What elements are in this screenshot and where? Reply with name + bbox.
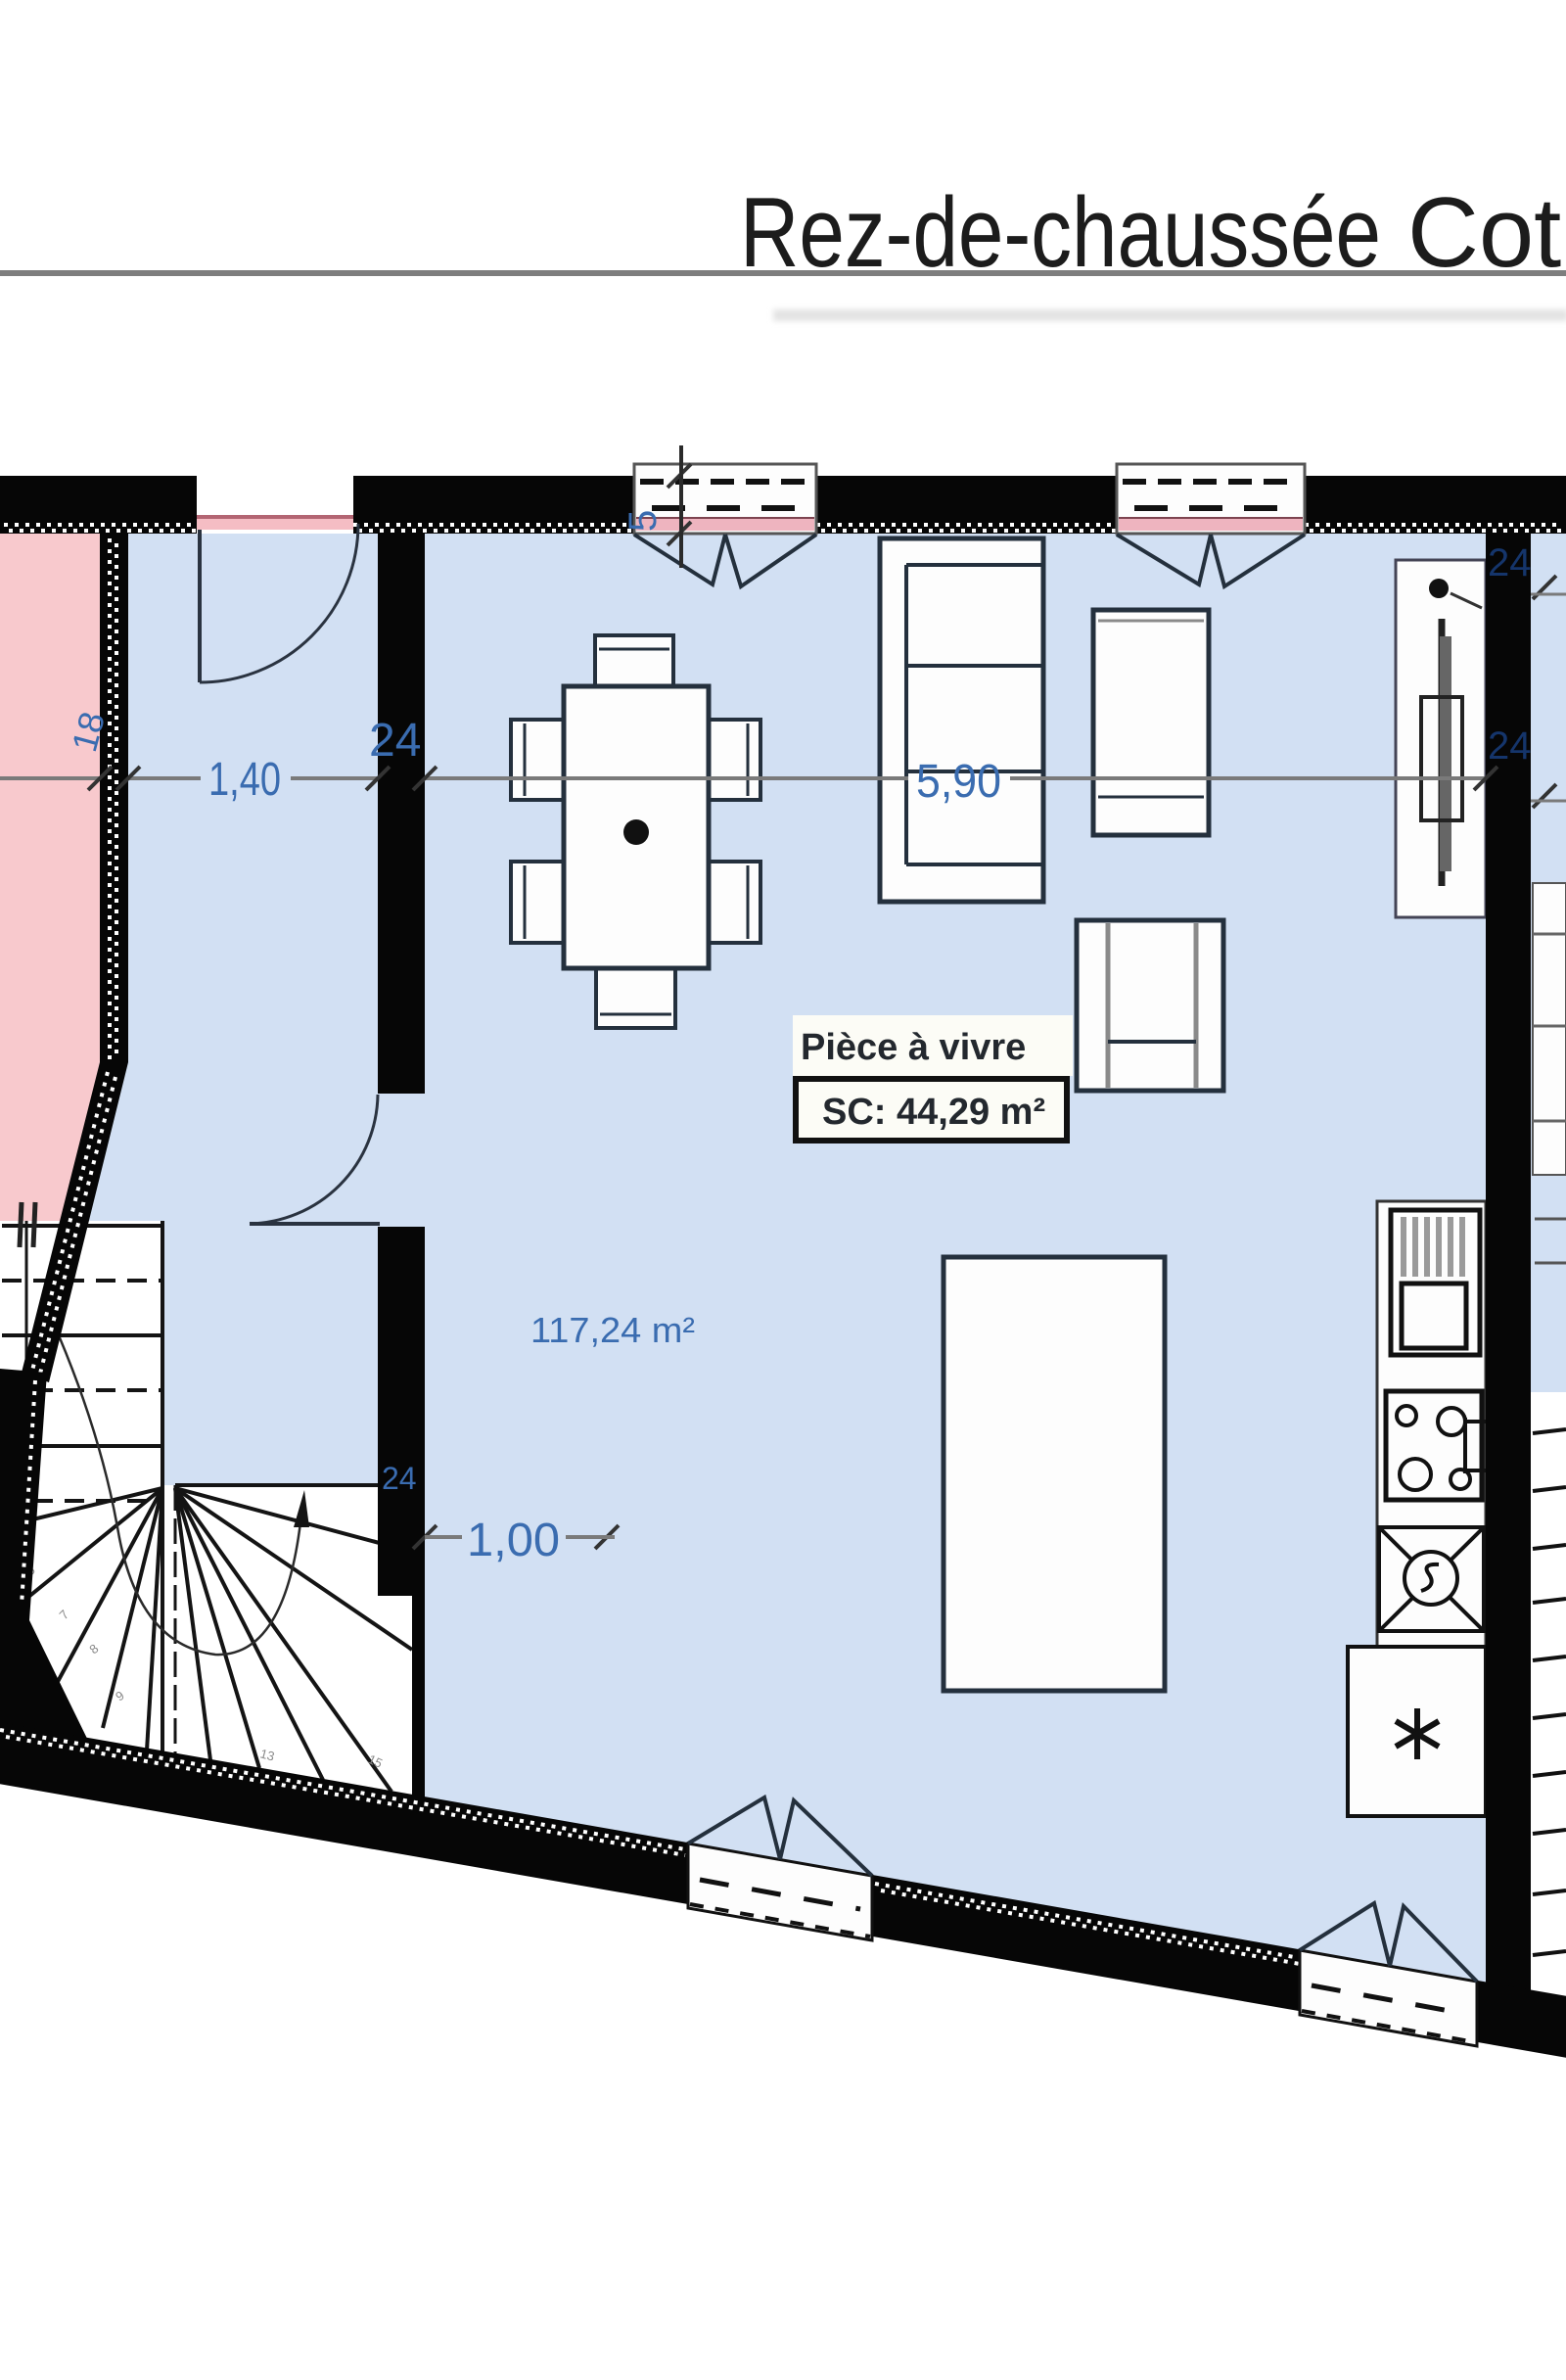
svg-text:SC: 44,29 m²: SC: 44,29 m² xyxy=(822,1092,1045,1133)
svg-text:1,00: 1,00 xyxy=(467,1515,560,1566)
svg-text:117,24 m²: 117,24 m² xyxy=(530,1310,695,1350)
svg-text:24: 24 xyxy=(382,1461,417,1496)
svg-text:24: 24 xyxy=(1488,724,1532,768)
svg-text:24: 24 xyxy=(369,715,421,767)
svg-text:5: 5 xyxy=(622,510,665,532)
svg-text:Pièce à vivre: Pièce à vivre xyxy=(801,1027,1026,1068)
svg-text:1,40: 1,40 xyxy=(208,754,281,806)
svg-text:24: 24 xyxy=(1488,541,1532,584)
svg-text:5,90: 5,90 xyxy=(916,756,1001,808)
